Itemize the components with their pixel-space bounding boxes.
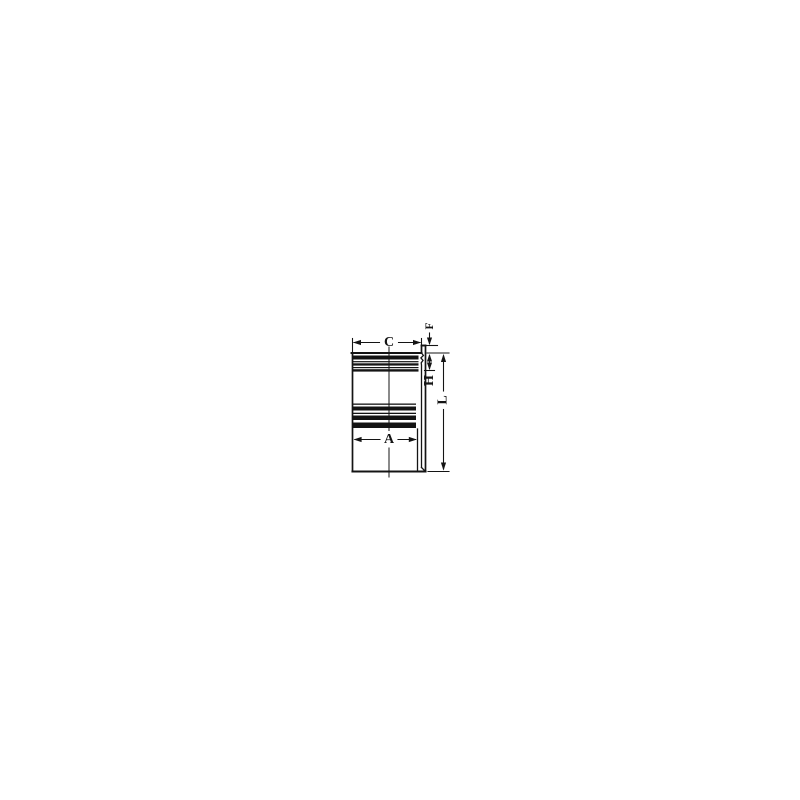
dim-label-c: C — [384, 335, 394, 350]
dim-label-a: A — [384, 432, 395, 447]
liner-middle-band — [353, 404, 417, 429]
dim-label-f: F — [424, 322, 436, 329]
dim-c-arrow-right — [413, 340, 421, 345]
liner-right-inner-wall — [421, 353, 424, 468]
page-background: C F H L — [0, 0, 800, 800]
dim-l-arrow-up — [441, 354, 446, 362]
dim-a-arrow-left — [354, 437, 362, 442]
dim-l-arrow-down — [441, 463, 446, 471]
dimension-f — [426, 333, 438, 346]
dim-a-arrow-right — [409, 437, 417, 442]
dim-h-arrow-up — [427, 354, 432, 362]
dim-f-arrow-down — [427, 338, 432, 346]
dim-label-h: H — [422, 375, 437, 386]
technical-drawing: C F H L — [0, 0, 800, 800]
liner-upper-band — [353, 356, 419, 372]
dim-h-arrow-down — [427, 363, 432, 371]
dim-c-arrow-left — [353, 340, 361, 345]
dim-label-l: L — [436, 395, 451, 404]
